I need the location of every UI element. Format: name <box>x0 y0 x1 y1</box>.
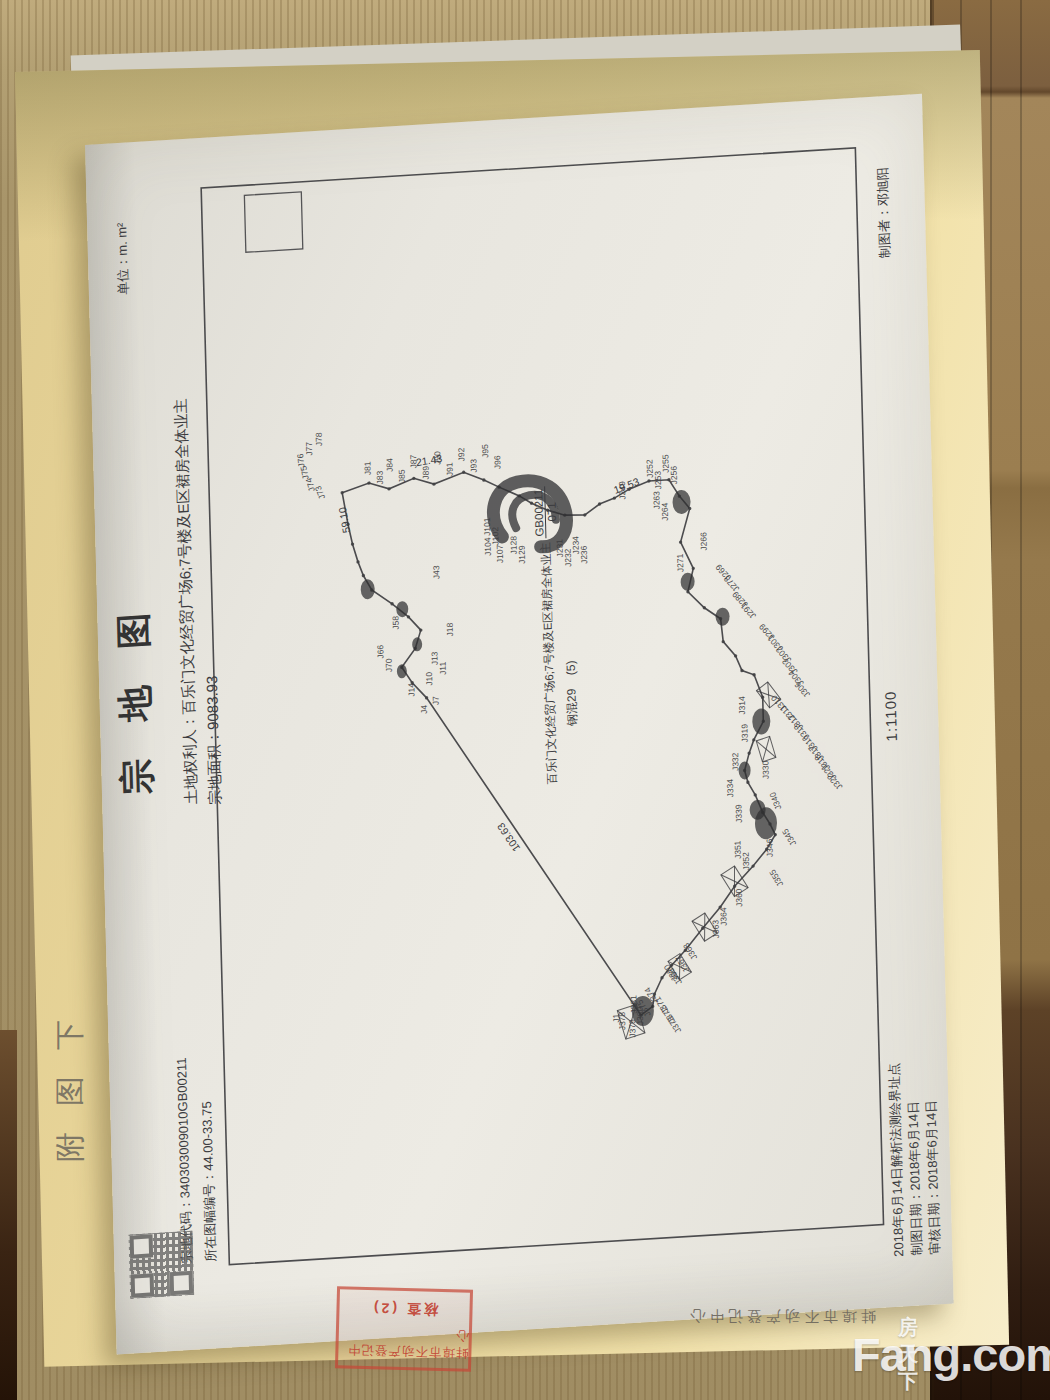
stamp-line2: 核查 (2) <box>371 1298 438 1318</box>
svg-text:J332: J332 <box>730 752 740 771</box>
svg-text:J4: J4 <box>419 704 429 714</box>
svg-text:103.63: 103.63 <box>494 821 522 854</box>
svg-text:J92: J92 <box>456 447 466 462</box>
svg-text:J271: J271 <box>675 553 685 572</box>
svg-text:J11: J11 <box>438 661 448 675</box>
svg-text:J14: J14 <box>406 682 416 697</box>
svg-text:J95: J95 <box>480 444 490 459</box>
svg-text:J78: J78 <box>314 432 324 447</box>
svg-text:J10: J10 <box>424 671 434 686</box>
parcel-map-document: 宗 地 图 单位：m. m² 土地权利人：百乐门文化经贸广场6;7号楼及E区裙房… <box>85 94 954 1355</box>
svg-text:J107: J107 <box>495 544 505 563</box>
svg-text:J43: J43 <box>431 565 441 580</box>
svg-text:J266: J266 <box>698 532 708 551</box>
folder-org-print: 蚌埠市不动产登记中心 <box>686 1306 876 1325</box>
svg-text:J334: J334 <box>725 778 735 797</box>
svg-text:J90: J90 <box>432 451 442 466</box>
cartographer-line: 制图者：邓旭阳 <box>874 167 894 259</box>
svg-text:J87: J87 <box>408 454 418 469</box>
svg-text:J355: J355 <box>767 868 785 889</box>
white-paper: 宗 地 图 单位：m. m² 土地权利人：百乐门文化经贸广场6;7号楼及E区裙房… <box>85 94 954 1355</box>
structure-label: 钢混29 (5) <box>563 660 582 726</box>
svg-text:J83: J83 <box>375 470 385 485</box>
map-scale: 1:1100 <box>882 690 900 742</box>
svg-text:J264: J264 <box>660 502 670 521</box>
svg-text:J352: J352 <box>741 852 751 871</box>
svg-text:J236: J236 <box>579 545 589 564</box>
svg-text:J7: J7 <box>431 696 441 706</box>
parcel-owner-text: 百乐门文化经贸广场6;7号楼及E区裙房全体业主 <box>539 542 560 785</box>
parcel-code-fraction: GB00211 071 <box>532 486 558 539</box>
svg-text:J256: J256 <box>669 465 679 484</box>
svg-text:J1: J1 <box>611 1013 621 1023</box>
svg-text:J18: J18 <box>445 622 455 637</box>
svg-text:J364: J364 <box>718 907 728 926</box>
svg-text:J58: J58 <box>390 615 400 630</box>
svg-text:J346: J346 <box>764 838 774 857</box>
stamp-line1: 蚌埠市不动产登记中心 <box>338 1323 469 1360</box>
svg-text:J91: J91 <box>444 462 454 477</box>
parcel-code-numerator: GB00211 <box>532 486 546 539</box>
svg-text:59.10: 59.10 <box>336 506 352 534</box>
svg-text:J345: J345 <box>780 827 798 848</box>
svg-text:J85: J85 <box>397 469 407 484</box>
wood-shadow-left <box>0 1030 17 1400</box>
svg-text:J253: J253 <box>653 470 663 489</box>
photo-of-land-parcel-document: 附图下 蚌埠市不动产登记中心 宗 地 图 单位：m. m² 土地权利人：百乐门文… <box>0 0 1050 1400</box>
svg-text:J81: J81 <box>362 461 372 476</box>
red-office-stamp: 蚌埠市不动产登记中心 核查 (2) <box>335 1286 473 1372</box>
svg-text:J70: J70 <box>384 658 394 673</box>
svg-text:J360: J360 <box>734 888 744 907</box>
svg-text:J129: J129 <box>517 545 527 564</box>
svg-text:J96: J96 <box>492 455 502 470</box>
svg-text:J89: J89 <box>421 465 431 480</box>
svg-text:J84: J84 <box>384 458 394 473</box>
svg-text:J93: J93 <box>468 458 478 473</box>
parcel-code-denominator: 071 <box>546 502 559 522</box>
map-svg: 21.4319.5359.10103.63J73J74J75J76J77J78J… <box>85 94 954 1355</box>
svg-text:J319: J319 <box>739 723 749 742</box>
svg-text:J314: J314 <box>737 696 747 715</box>
svg-text:J330: J330 <box>760 760 770 779</box>
svg-text:J249: J249 <box>617 481 627 500</box>
fang-watermark-en: Fang.com <box>852 1327 1050 1382</box>
folder-side-label: 附图下 <box>50 994 91 1162</box>
svg-text:J339: J339 <box>733 804 743 823</box>
svg-text:J77: J77 <box>304 441 314 456</box>
svg-text:J104: J104 <box>482 537 492 556</box>
svg-text:J66: J66 <box>375 644 385 659</box>
svg-text:J381: J381 <box>628 995 638 1014</box>
